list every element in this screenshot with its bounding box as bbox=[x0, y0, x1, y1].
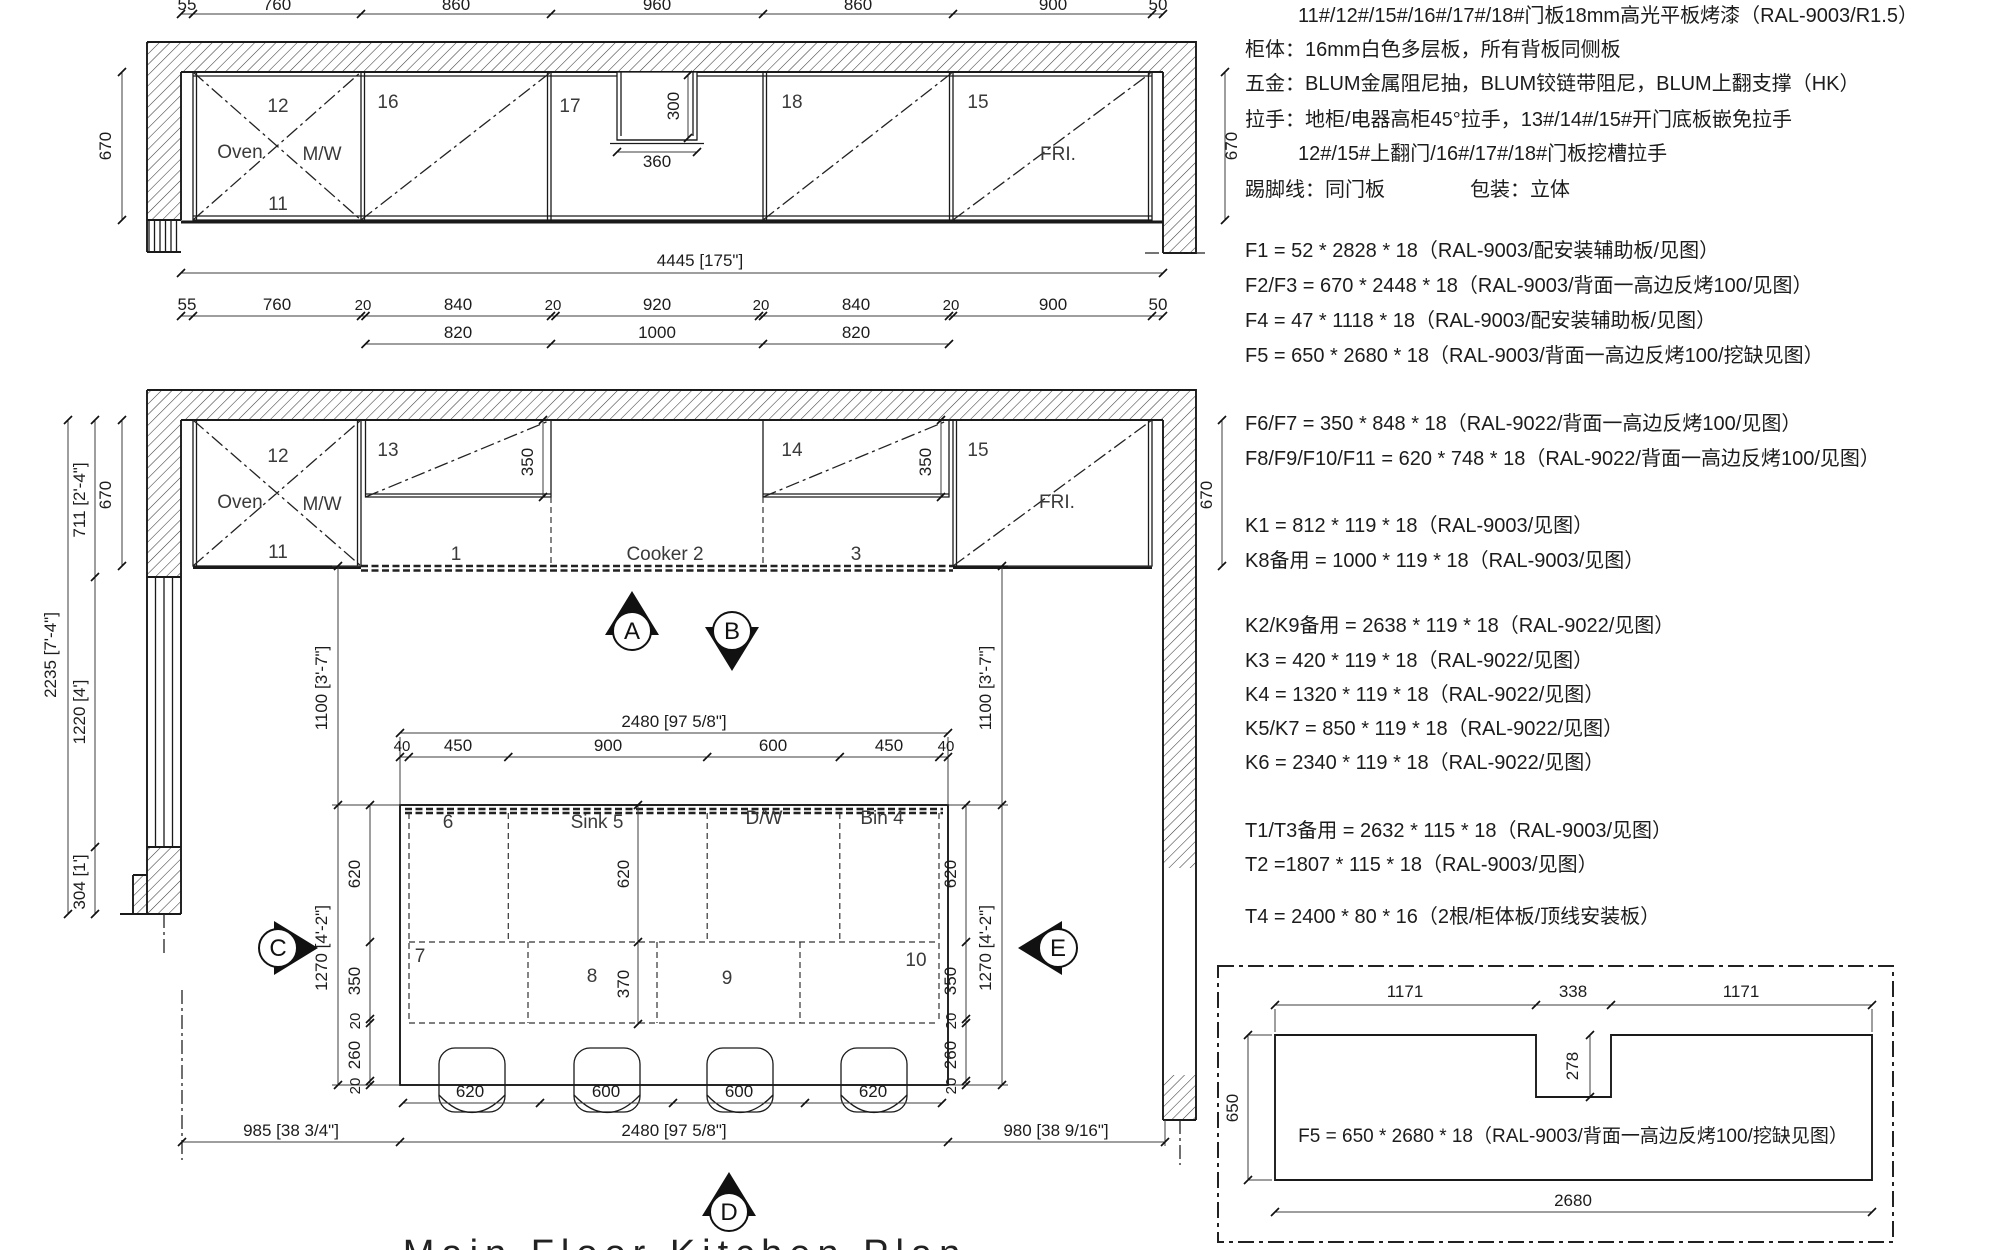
wall-hatch-left bbox=[147, 72, 181, 220]
top-elevation: 55 760 860 960 860 900 50 4445 [175"] 67… bbox=[96, 0, 1241, 277]
dim: 55 bbox=[178, 295, 197, 314]
cabinet-label-11: 11 bbox=[268, 542, 288, 563]
wall-hatch-right-stub bbox=[1163, 1075, 1196, 1120]
marker-letter: D bbox=[720, 1199, 737, 1226]
island-cell-sink: Sink 5 bbox=[571, 812, 624, 833]
island-counter bbox=[400, 805, 948, 1085]
dim-1270-right: 1270 [4'-2"] bbox=[976, 905, 995, 991]
panel-k4: K4 = 1320 * 119 * 18（RAL-9022/见图） bbox=[1245, 683, 1604, 706]
cabinet-label-14: 14 bbox=[781, 440, 803, 461]
panel-f6-f7: F6/F7 = 350 * 848 * 18（RAL-9022/背面一高边反烤1… bbox=[1245, 412, 1801, 435]
dim-670-left: 670 bbox=[96, 481, 115, 509]
oven-label: Oven bbox=[217, 142, 262, 163]
dim-20: 20 bbox=[347, 1078, 364, 1095]
panel-t1-t3: T1/T3备用 = 2632 * 115 * 18（RAL-9003/见图） bbox=[1245, 819, 1672, 842]
dim-island-width: 2480 [97 5/8"] bbox=[621, 712, 726, 731]
fridge-label: FRI. bbox=[1040, 144, 1076, 165]
dim-350: 350 bbox=[345, 967, 364, 995]
dim: 40 bbox=[938, 738, 955, 755]
wall-outline bbox=[120, 390, 1196, 1120]
dim-chair: 600 bbox=[725, 1082, 753, 1101]
dim: 840 bbox=[444, 295, 472, 314]
note-cabinet-body: 柜体：16mm白色多层板，所有背板同侧板 bbox=[1245, 38, 1621, 61]
dim-370-island: 370 bbox=[614, 970, 633, 998]
wall-hatch-left-step bbox=[133, 875, 147, 914]
notes-panel: 11#/12#/15#/16#/17#/18#门板18mm高光平板烤漆（RAL-… bbox=[1245, 4, 1918, 928]
panel-k8: K8备用 = 1000 * 119 * 18（RAL-9003/见图） bbox=[1245, 549, 1644, 572]
dim-338: 338 bbox=[1559, 982, 1587, 1001]
dim-980: 980 [38 9/16"] bbox=[1003, 1121, 1108, 1140]
cabinet-label-11: 11 bbox=[268, 194, 288, 215]
note-hardware: 五金：BLUM金属阻尼抽，BLUM铰链带阻尼，BLUM上翻支撑（HK） bbox=[1245, 72, 1859, 95]
dim: 20 bbox=[355, 297, 372, 314]
panel-f5: F5 = 650 * 2680 * 18（RAL-9003/背面一高边反烤100… bbox=[1245, 344, 1824, 367]
dim-670-left: 670 bbox=[96, 132, 115, 160]
dim-711: 711 [2'-4"] bbox=[70, 462, 89, 537]
marker-letter: E bbox=[1050, 935, 1066, 962]
dim-1171: 1171 bbox=[1723, 982, 1760, 1001]
marker-letter: A bbox=[624, 618, 640, 645]
dim-350: 350 bbox=[941, 967, 960, 995]
dim: 450 bbox=[875, 736, 903, 755]
note-handle-1: 拉手：地柜/电器高柜45°拉手，13#/14#/15#开门底板嵌免拉手 bbox=[1245, 108, 1792, 131]
marker-a: A bbox=[605, 591, 659, 650]
dim-chair: 620 bbox=[859, 1082, 887, 1101]
dimension-lines bbox=[68, 420, 1222, 1142]
extension-lines bbox=[332, 566, 1165, 1146]
dim-2480: 2480 [97 5/8"] bbox=[621, 1121, 726, 1140]
dim: 900 bbox=[594, 736, 622, 755]
dim: 50 bbox=[1149, 295, 1168, 314]
marker-letter: B bbox=[724, 618, 740, 645]
cabinet-label-12: 12 bbox=[267, 96, 288, 117]
wall-hatch-top bbox=[147, 390, 1196, 420]
chair bbox=[439, 1048, 505, 1112]
dim-total: 4445 [175"] bbox=[657, 251, 743, 270]
dim: 820 bbox=[842, 323, 870, 342]
dim-notch-300: 300 bbox=[664, 92, 683, 120]
dim-1171: 1171 bbox=[1387, 982, 1424, 1001]
wall-hatch-top-band bbox=[147, 42, 1196, 72]
island-cell-10: 10 bbox=[905, 950, 926, 971]
cabinet-label-17: 17 bbox=[559, 96, 580, 117]
dim: 20 bbox=[753, 297, 770, 314]
dim: 900 bbox=[1039, 0, 1067, 14]
dim: 20 bbox=[545, 297, 562, 314]
dim-985: 985 [38 3/4"] bbox=[243, 1121, 339, 1140]
dim-304: 304 [1'] bbox=[70, 854, 89, 909]
dim-670-right: 670 bbox=[1222, 132, 1241, 160]
dim-20: 20 bbox=[943, 1013, 960, 1030]
island-cell-9: 9 bbox=[722, 968, 733, 989]
floor-plan: 2235 [7'-4"] 711 [2'-4"] 1220 [4'] 304 [… bbox=[41, 390, 1226, 1165]
wall-hatch-right bbox=[1163, 420, 1196, 868]
island-cell-8: 8 bbox=[587, 966, 598, 987]
dim: 450 bbox=[444, 736, 472, 755]
panel-k5-k7: K5/K7 = 850 * 119 * 18（RAL-9022/见图） bbox=[1245, 717, 1623, 740]
dim-chair: 600 bbox=[592, 1082, 620, 1101]
dim-260: 260 bbox=[941, 1041, 960, 1069]
dim-2680: 2680 bbox=[1554, 1191, 1592, 1210]
island-cell-7: 7 bbox=[415, 946, 426, 967]
panel-f2-f3: F2/F3 = 670 * 2448 * 18（RAL-9003/背面一高边反烤… bbox=[1245, 274, 1812, 297]
dim-notch-360: 360 bbox=[643, 152, 671, 171]
dim: 920 bbox=[643, 295, 671, 314]
wall-hatch-right bbox=[1163, 72, 1196, 253]
note-skirting: 踢脚线：同门板 bbox=[1245, 178, 1385, 201]
dim-620: 620 bbox=[941, 860, 960, 888]
chair bbox=[707, 1048, 773, 1112]
cabinet-label-15: 15 bbox=[967, 92, 988, 113]
cabinet-label-15: 15 bbox=[967, 440, 988, 461]
dim: 600 bbox=[759, 736, 787, 755]
f5-panel-label: F5 = 650 * 2680 * 18（RAL-9003/背面一高边反烤100… bbox=[1298, 1125, 1848, 1147]
cooker-label: Cooker 2 bbox=[626, 544, 703, 565]
page-title: Main Floor Kitchen Plan bbox=[403, 1233, 967, 1250]
panel-k6: K6 = 2340 * 119 * 18（RAL-9022/见图） bbox=[1245, 751, 1604, 774]
island-cabinet-dashed bbox=[409, 813, 939, 1023]
microwave-label: M/W bbox=[302, 144, 341, 165]
dim: 1000 bbox=[638, 323, 676, 342]
marker-c: C bbox=[259, 921, 318, 975]
cabinet-label-16: 16 bbox=[377, 92, 398, 113]
marker-letter: C bbox=[269, 935, 286, 962]
panel-t4: T4 = 2400 * 80 * 16（2根/柜体板/顶线安装板） bbox=[1245, 905, 1660, 928]
dim-2235: 2235 [7'-4"] bbox=[41, 612, 60, 698]
wall-comb-lines bbox=[149, 220, 177, 252]
note-packing: 包装：立体 bbox=[1470, 178, 1570, 201]
cabinet-label-13: 13 bbox=[377, 440, 398, 461]
dim-chair: 620 bbox=[456, 1082, 484, 1101]
dim-620-island: 620 bbox=[614, 860, 633, 888]
marker-e: E bbox=[1018, 921, 1077, 975]
dim: 40 bbox=[394, 738, 411, 755]
wall-hatch-left-upper bbox=[147, 420, 181, 577]
wall-hatch-left-lower bbox=[147, 847, 181, 914]
dim: 840 bbox=[842, 295, 870, 314]
panel-f8-f11: F8/F9/F10/F11 = 620 * 748 * 18（RAL-9022/… bbox=[1245, 447, 1880, 470]
dim-20: 20 bbox=[943, 1078, 960, 1095]
dimension-ticks bbox=[1244, 1001, 1876, 1216]
dim-1100-left: 1100 [3'-7"] bbox=[312, 646, 331, 731]
chair bbox=[574, 1048, 640, 1112]
counter-label-3: 3 bbox=[851, 544, 862, 565]
cabinet-label-12: 12 bbox=[267, 446, 288, 467]
dim: 50 bbox=[1149, 0, 1168, 14]
dimension-ticks bbox=[64, 416, 1226, 1146]
cabinet-label-18: 18 bbox=[781, 92, 802, 113]
dim-20: 20 bbox=[347, 1013, 364, 1030]
panel-t2: T2 =1807 * 115 * 18（RAL-9003/见图） bbox=[1245, 853, 1598, 876]
dim: 20 bbox=[943, 297, 960, 314]
oven-label: Oven bbox=[217, 492, 262, 513]
marker-d: D bbox=[702, 1172, 756, 1231]
dim-1100-right: 1100 [3'-7"] bbox=[976, 646, 995, 731]
dim: 900 bbox=[1039, 295, 1067, 314]
counter-front-dashed bbox=[361, 566, 953, 571]
island-cell-6: 6 bbox=[443, 812, 454, 833]
dim-620: 620 bbox=[345, 860, 364, 888]
detail-panel: 1171 338 1171 278 650 2680 F5 = 650 * 26… bbox=[1218, 966, 1893, 1242]
dim-350-cab13: 350 bbox=[518, 448, 537, 476]
note-handle-2: 12#/15#上翻门/16#/17#/18#门板挖槽拉手 bbox=[1298, 142, 1667, 165]
hood-notch bbox=[617, 72, 697, 140]
dim: 55 bbox=[178, 0, 197, 14]
dim: 860 bbox=[844, 0, 872, 14]
panel-k2-k9: K2/K9备用 = 2638 * 119 * 18（RAL-9022/见图） bbox=[1245, 614, 1674, 637]
dim: 760 bbox=[263, 0, 291, 14]
microwave-label: M/W bbox=[302, 494, 341, 515]
window-lines bbox=[156, 577, 173, 847]
fridge-label: FRI. bbox=[1039, 492, 1075, 513]
panel-f4: F4 = 47 * 1118 * 18（RAL-9003/配安装辅助板/见图） bbox=[1245, 309, 1716, 332]
plan-dim-rows: 55 760 20 840 20 920 20 840 20 900 50 82… bbox=[177, 295, 1167, 348]
chair bbox=[841, 1048, 907, 1112]
dim: 960 bbox=[643, 0, 671, 14]
island-cell-dw: D/W bbox=[746, 808, 783, 829]
panel-f1: F1 = 52 * 2828 * 18（RAL-9003/配安装辅助板/见图） bbox=[1245, 239, 1719, 262]
marker-b: B bbox=[705, 612, 759, 671]
island-cell-bin: Bin 4 bbox=[860, 808, 904, 829]
dim-670-right: 670 bbox=[1197, 481, 1216, 509]
dim-650: 650 bbox=[1223, 1094, 1242, 1122]
panel-k3: K3 = 420 * 119 * 18（RAL-9022/见图） bbox=[1245, 649, 1593, 672]
dim-350-cab14: 350 bbox=[916, 448, 935, 476]
dim-260: 260 bbox=[345, 1041, 364, 1069]
dim-1220: 1220 [4'] bbox=[70, 680, 89, 745]
note-door-panel: 11#/12#/15#/16#/17#/18#门板18mm高光平板烤漆（RAL-… bbox=[1298, 4, 1918, 27]
kitchen-cad-drawing: 55 760 860 960 860 900 50 4445 [175"] 67… bbox=[0, 0, 2000, 1250]
dim: 860 bbox=[442, 0, 470, 14]
panel-k1: K1 = 812 * 119 * 18（RAL-9003/见图） bbox=[1245, 514, 1593, 537]
dim: 820 bbox=[444, 323, 472, 342]
dim: 760 bbox=[263, 295, 291, 314]
dim-278: 278 bbox=[1563, 1052, 1582, 1080]
counter-label-1: 1 bbox=[451, 544, 462, 565]
